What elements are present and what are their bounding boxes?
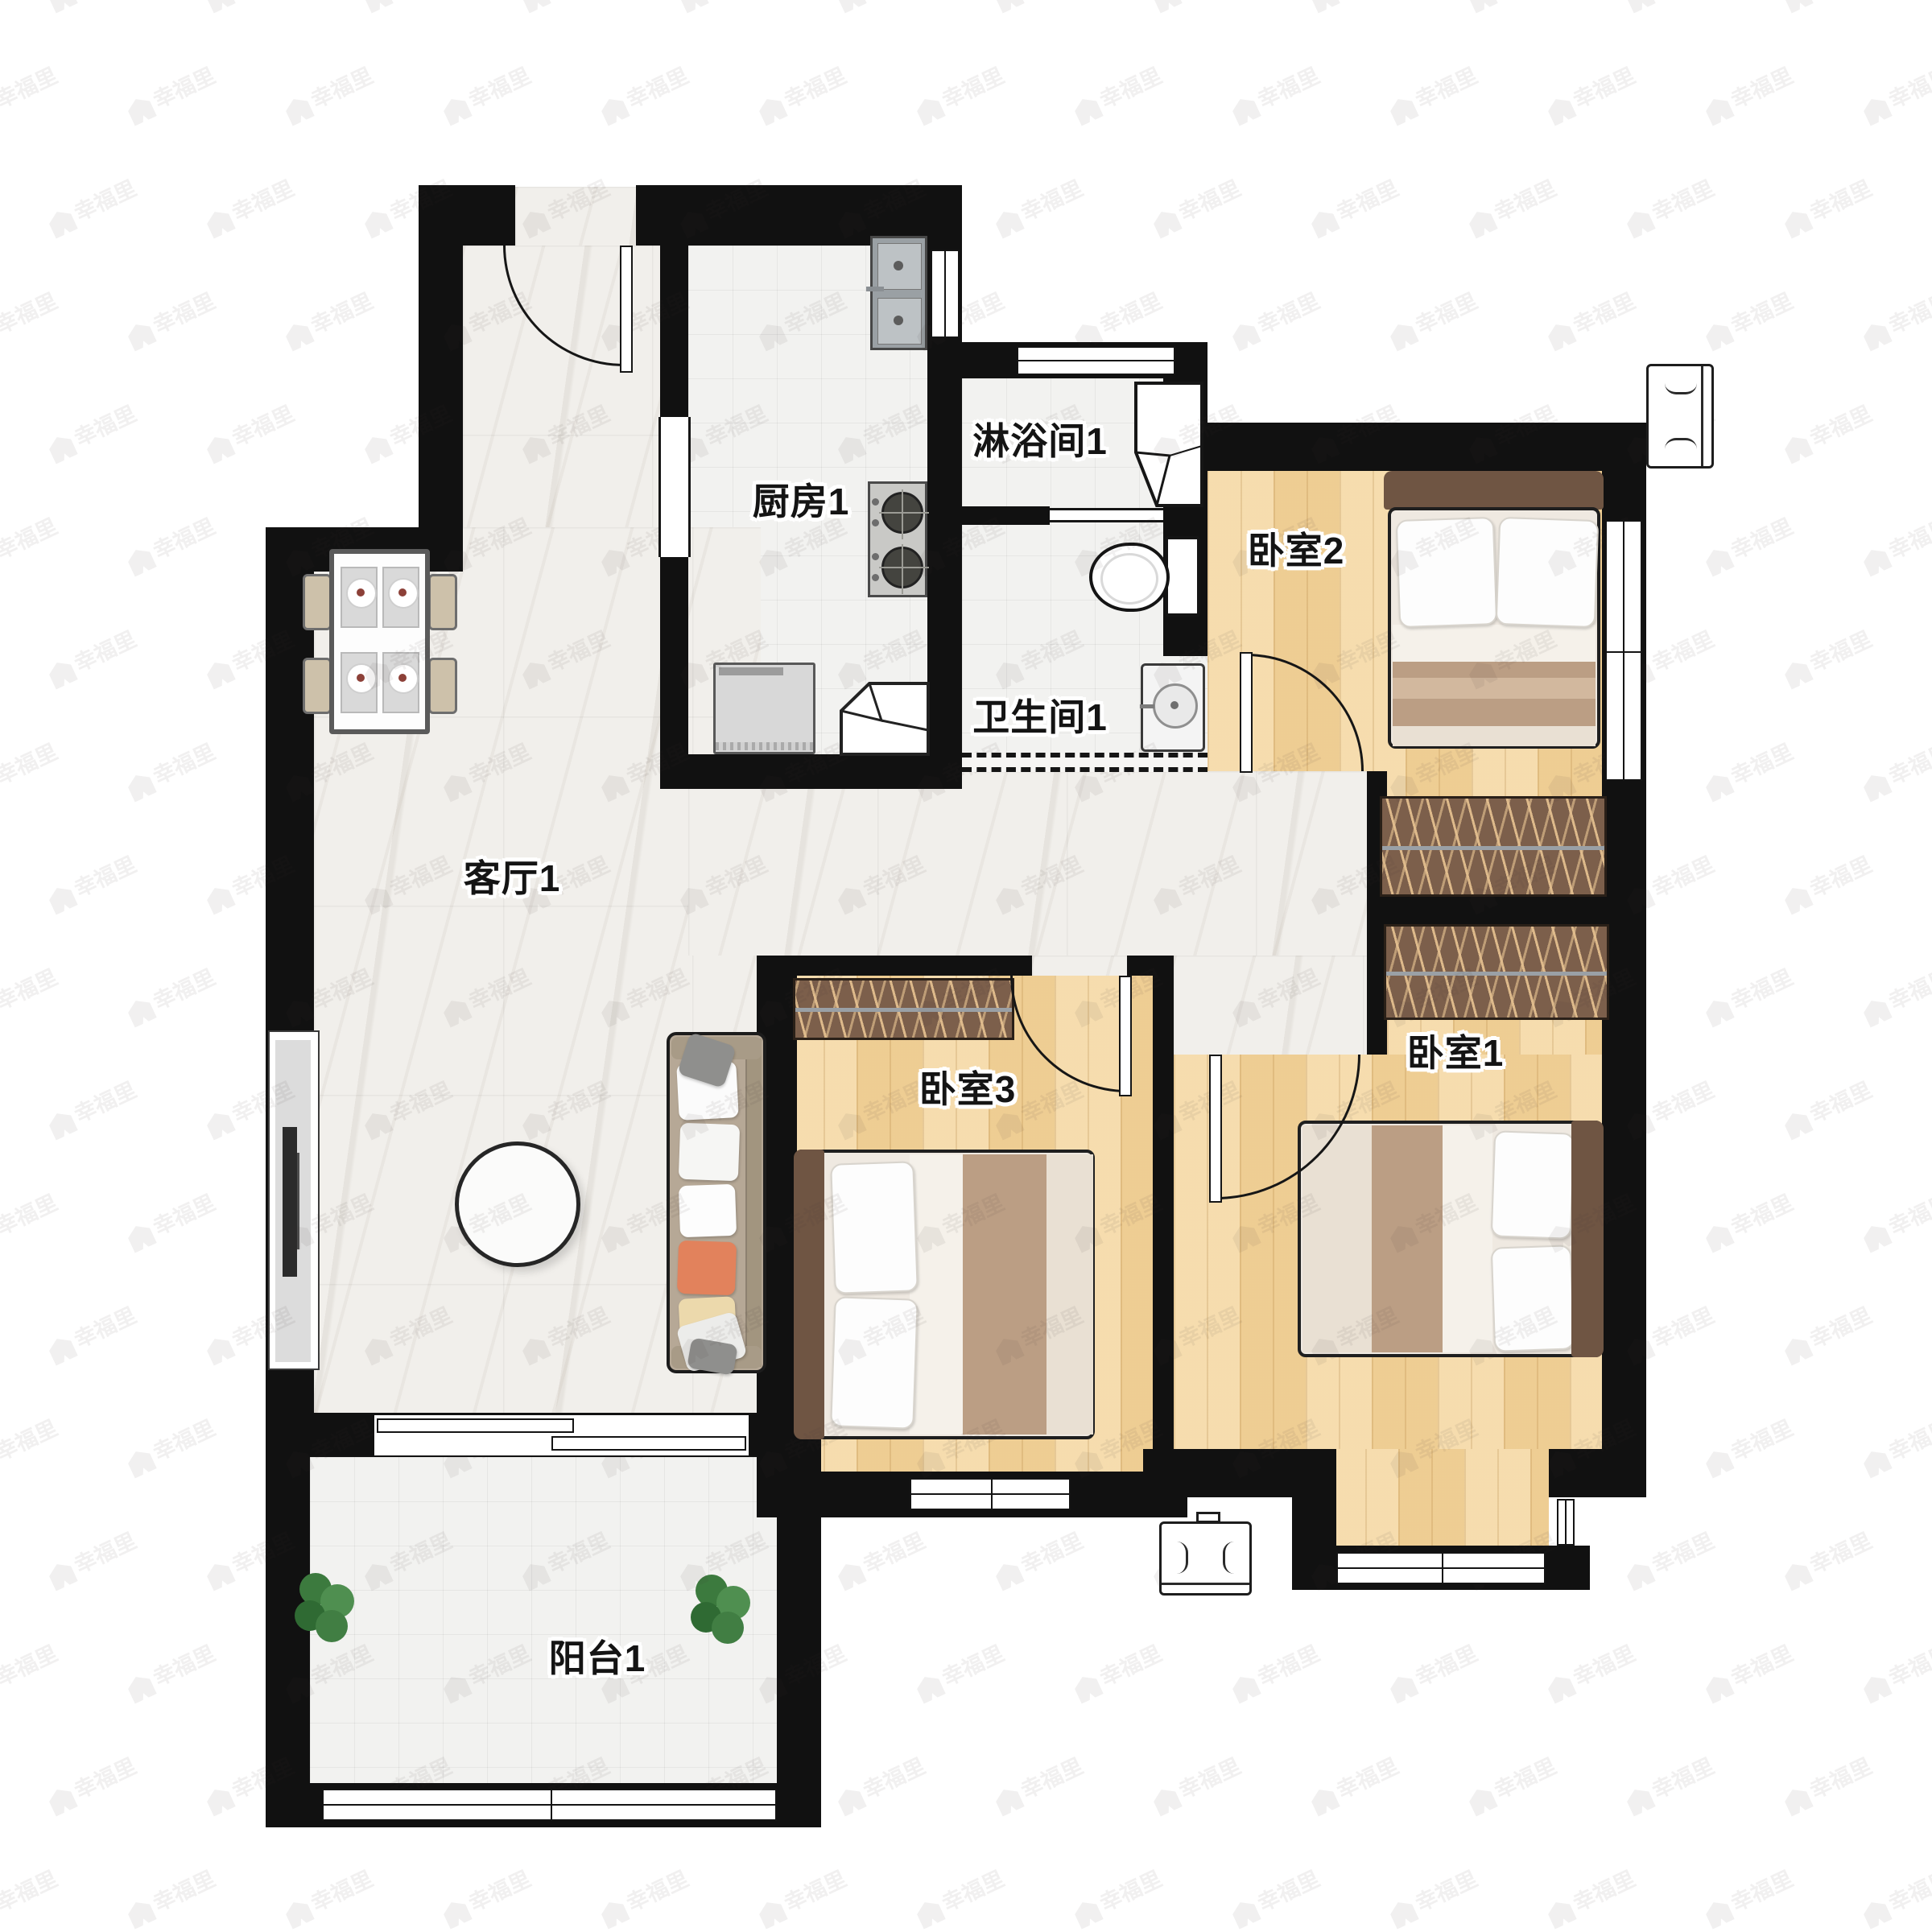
bedroom1-bed-headboard (1571, 1121, 1604, 1357)
brand-watermark: 幸福里 (753, 58, 851, 126)
house-icon (993, 207, 1025, 239)
brand-watermark: 幸福里 (200, 171, 299, 238)
house-icon (677, 0, 709, 14)
brand-watermark: 幸福里 (1699, 734, 1798, 802)
kitchen-opening (658, 417, 691, 557)
house-icon (1860, 320, 1893, 352)
brand-watermark: 幸福里 (43, 1748, 141, 1816)
room-label-bedroom2: 卧室2 (1248, 522, 1345, 575)
house-icon (1703, 545, 1735, 577)
brand-watermark: 幸福里 (1699, 509, 1798, 576)
brand-watermark: 幸福里 (0, 1410, 62, 1478)
brand-watermark: 幸福里 (1226, 283, 1324, 351)
brand-watermark: 幸福里 (674, 0, 772, 14)
brand-watermark: 幸福里 (279, 58, 378, 126)
wall-kitchen-bottom (660, 754, 962, 789)
house-icon (1860, 1672, 1893, 1704)
brand-watermark: 幸福里 (1384, 1636, 1482, 1703)
house-icon (46, 1559, 78, 1591)
hallway-spur-floor (1174, 956, 1367, 1055)
house-icon (1781, 1108, 1814, 1141)
entrance-threshold-floor (515, 187, 636, 246)
tv-icon (283, 1127, 297, 1277)
house-icon (46, 658, 78, 690)
kitchen-sink (870, 236, 927, 350)
wall-bottom-right-step (1549, 1449, 1646, 1497)
house-icon (204, 0, 236, 14)
room-label-living: 客厅1 (464, 849, 561, 902)
house-icon (1545, 320, 1577, 352)
wall-bedroom2-top (1207, 423, 1646, 471)
house-icon (835, 0, 867, 14)
house-icon (1229, 1672, 1261, 1704)
house-icon (204, 883, 236, 915)
dining-chair-top-right (428, 574, 457, 630)
dining-table (329, 549, 430, 734)
house-icon (1387, 1897, 1419, 1930)
room-label-bedroom1: 卧室1 (1407, 1024, 1505, 1077)
house-icon (283, 94, 315, 126)
brand-watermark: 幸福里 (910, 1636, 1009, 1703)
brand-watermark: 幸福里 (989, 1748, 1088, 1816)
bedroom3-door-leaf (1119, 976, 1132, 1096)
brand-watermark: 幸福里 (1778, 1523, 1876, 1591)
brand-watermark: 幸福里 (1068, 1861, 1166, 1929)
brand-watermark: 幸福里 (1384, 283, 1482, 351)
wall-left-upper (419, 185, 463, 527)
house-icon (598, 94, 630, 126)
house-icon (1860, 1221, 1893, 1253)
house-icon (1703, 1897, 1735, 1930)
house-icon (204, 207, 236, 239)
house-icon (125, 1897, 157, 1930)
brand-watermark: 幸福里 (122, 734, 220, 802)
bedroom1-floor-c (1332, 1449, 1549, 1554)
house-icon (1308, 0, 1340, 14)
house-icon (756, 1897, 788, 1930)
shower-tray (1134, 382, 1203, 507)
house-icon (598, 1897, 630, 1930)
brand-watermark: 幸福里 (1620, 0, 1719, 14)
room-label-balcony: 阳台1 (549, 1629, 646, 1682)
house-icon (361, 207, 394, 239)
brand-watermark: 幸福里 (43, 1298, 141, 1365)
brand-watermark: 幸福里 (1226, 58, 1324, 126)
house-icon (1703, 94, 1735, 126)
brand-watermark: 幸福里 (1620, 171, 1719, 238)
house-icon (1545, 1672, 1577, 1704)
brand-watermark: 幸福里 (989, 171, 1088, 238)
brand-watermark: 幸福里 (1226, 1861, 1324, 1929)
ac-unit-bedroom2 (1646, 364, 1714, 469)
house-icon (125, 320, 157, 352)
brand-watermark: 幸福里 (0, 58, 62, 126)
house-icon (1781, 0, 1814, 14)
house-icon (1624, 0, 1656, 14)
house-icon (361, 432, 394, 464)
brand-watermark: 幸福里 (43, 1523, 141, 1591)
brand-watermark: 幸福里 (358, 0, 456, 14)
house-icon (204, 658, 236, 690)
brand-watermark: 幸福里 (0, 1185, 62, 1253)
toilet-bowl (1089, 543, 1170, 612)
house-icon (283, 320, 315, 352)
house-icon (1703, 1672, 1735, 1704)
brand-watermark: 幸福里 (0, 1861, 62, 1929)
brand-watermark: 幸福里 (122, 1636, 220, 1703)
brand-watermark: 幸福里 (1463, 1748, 1561, 1816)
house-icon (1545, 1897, 1577, 1930)
brand-watermark: 幸福里 (437, 1861, 535, 1929)
house-icon (1703, 1221, 1735, 1253)
house-icon (1860, 1447, 1893, 1479)
brand-watermark: 幸福里 (1542, 283, 1640, 351)
house-icon (46, 1108, 78, 1141)
bedroom3-wardrobe (793, 978, 1014, 1040)
house-icon (1387, 94, 1419, 126)
brand-watermark: 幸福里 (1699, 1410, 1798, 1478)
brand-watermark: 幸福里 (43, 0, 141, 14)
balcony-sliding-door (374, 1415, 749, 1455)
brand-watermark: 幸福里 (1857, 58, 1932, 126)
brand-watermark: 幸福里 (122, 509, 220, 576)
house-icon (125, 996, 157, 1028)
house-icon (204, 1785, 236, 1817)
brand-watermark: 幸福里 (1699, 1185, 1798, 1253)
brand-watermark: 幸福里 (1542, 58, 1640, 126)
house-icon (204, 1559, 236, 1591)
brand-watermark: 幸福里 (122, 283, 220, 351)
bedroom3-bed-headboard (794, 1150, 824, 1439)
brand-watermark: 幸福里 (43, 396, 141, 464)
house-icon (1229, 320, 1261, 352)
house-icon (125, 94, 157, 126)
brand-watermark: 幸福里 (1699, 960, 1798, 1027)
bedroom3-window (910, 1478, 1071, 1510)
corner-window-stub (1557, 1499, 1575, 1546)
balcony-window (322, 1789, 777, 1821)
brand-watermark: 幸福里 (595, 58, 693, 126)
brand-watermark: 幸福里 (989, 1523, 1088, 1591)
brand-watermark: 幸福里 (1305, 1748, 1403, 1816)
house-icon (1150, 207, 1183, 239)
house-icon (993, 1559, 1025, 1591)
brand-watermark: 幸福里 (1778, 0, 1876, 14)
house-icon (1860, 545, 1893, 577)
brand-watermark: 幸福里 (1778, 171, 1876, 238)
brand-watermark: 幸福里 (1384, 58, 1482, 126)
bedroom2-door-leaf (1240, 652, 1253, 773)
house-icon (914, 1897, 946, 1930)
brand-watermark: 幸福里 (1068, 58, 1166, 126)
floor-plan-canvas: 幸福里幸福里幸福里幸福里幸福里幸福里幸福里幸福里幸福里幸福里幸福里幸福里幸福里幸… (0, 0, 1932, 1932)
house-icon (46, 0, 78, 14)
brand-watermark: 幸福里 (1305, 0, 1403, 14)
ac-unit-bedroom3 (1159, 1521, 1252, 1596)
coffee-table (455, 1141, 580, 1267)
wall-bedroom1-2-divider (1367, 897, 1646, 924)
house-icon (993, 1785, 1025, 1817)
brand-watermark: 幸福里 (43, 621, 141, 689)
house-icon (46, 1785, 78, 1817)
corridor-floor (688, 771, 1367, 956)
brand-watermark: 幸福里 (1699, 1861, 1798, 1929)
dining-chair-bottom-left (303, 658, 332, 714)
room-label-bathroom: 卫生间1 (972, 688, 1108, 741)
brand-watermark: 幸福里 (1620, 1523, 1719, 1591)
brand-watermark: 幸福里 (43, 171, 141, 238)
brand-watermark: 幸福里 (279, 283, 378, 351)
brand-watermark: 幸福里 (1857, 283, 1932, 351)
house-icon (1466, 0, 1498, 14)
brand-watermark: 幸福里 (1699, 58, 1798, 126)
bedroom2-bed (1388, 507, 1600, 749)
house-icon (835, 1785, 867, 1817)
house-icon (1781, 658, 1814, 690)
room-label-shower: 淋浴间1 (972, 412, 1108, 465)
house-icon (440, 1897, 473, 1930)
bedroom1-bed (1298, 1121, 1604, 1357)
house-icon (1150, 1785, 1183, 1817)
brand-watermark: 幸福里 (1778, 1072, 1876, 1140)
house-icon (835, 1559, 867, 1591)
house-icon (914, 94, 946, 126)
house-icon (1071, 1672, 1104, 1704)
refrigerator (713, 663, 815, 754)
brand-watermark: 幸福里 (989, 0, 1088, 14)
bedroom2-wardrobe (1380, 796, 1607, 897)
bedroom3-door-gap (1032, 956, 1127, 976)
bathroom-threshold-dashed (962, 753, 1207, 772)
house-icon (756, 94, 788, 126)
house-icon (125, 1672, 157, 1704)
house-icon (914, 1672, 946, 1704)
house-icon (1703, 1447, 1735, 1479)
brand-watermark: 幸福里 (0, 283, 62, 351)
brand-watermark: 幸福里 (1857, 1410, 1932, 1478)
brand-watermark: 幸福里 (910, 58, 1009, 126)
bedroom1-window (1336, 1552, 1546, 1584)
house-icon (1781, 1334, 1814, 1366)
house-icon (1466, 1785, 1498, 1817)
brand-watermark: 幸福里 (753, 1861, 851, 1929)
house-icon (204, 1108, 236, 1141)
faucet-icon (1140, 704, 1154, 708)
brand-watermark: 幸福里 (1857, 734, 1932, 802)
house-icon (46, 1334, 78, 1366)
brand-watermark: 幸福里 (1147, 0, 1245, 14)
house-icon (1466, 207, 1498, 239)
brand-watermark: 幸福里 (832, 1748, 930, 1816)
house-icon (1624, 1785, 1656, 1817)
brand-watermark: 幸福里 (516, 0, 614, 14)
brand-watermark: 幸福里 (43, 1072, 141, 1140)
house-icon (1703, 770, 1735, 803)
house-icon (1781, 1785, 1814, 1817)
brand-watermark: 幸福里 (1778, 847, 1876, 914)
room-label-kitchen: 厨房1 (753, 473, 850, 526)
brand-watermark: 幸福里 (832, 1523, 930, 1591)
bedroom1-door-leaf (1209, 1055, 1222, 1203)
brand-watermark: 幸福里 (122, 1861, 220, 1929)
brand-watermark: 幸福里 (595, 1861, 693, 1929)
house-icon (204, 432, 236, 464)
brand-watermark: 幸福里 (1857, 1636, 1932, 1703)
brand-watermark: 幸福里 (1857, 509, 1932, 576)
house-icon (1781, 883, 1814, 915)
brand-watermark: 幸福里 (1857, 960, 1932, 1027)
house-icon (204, 1334, 236, 1366)
brand-watermark: 幸福里 (43, 847, 141, 914)
brand-watermark: 幸福里 (1857, 1185, 1932, 1253)
bedroom2-bed-headboard (1384, 471, 1604, 510)
brand-watermark: 幸福里 (122, 1410, 220, 1478)
house-icon (1781, 1559, 1814, 1591)
brand-watermark: 幸福里 (1147, 171, 1245, 238)
bedroom3-bed (794, 1150, 1095, 1439)
house-icon (1071, 94, 1104, 126)
brand-watermark: 幸福里 (122, 1185, 220, 1253)
brand-watermark: 幸福里 (200, 0, 299, 14)
brand-watermark: 幸福里 (0, 509, 62, 576)
brand-watermark: 幸福里 (832, 0, 930, 14)
bathroom-sink (1141, 663, 1205, 752)
brand-watermark: 幸福里 (1542, 1636, 1640, 1703)
house-icon (361, 0, 394, 14)
brand-watermark: 幸福里 (1542, 1861, 1640, 1929)
house-icon (1860, 1897, 1893, 1930)
brand-watermark: 幸福里 (1384, 1861, 1482, 1929)
house-icon (1624, 207, 1656, 239)
shower-window (1017, 346, 1175, 375)
brand-watermark: 幸福里 (1778, 621, 1876, 689)
brand-watermark: 幸福里 (437, 58, 535, 126)
house-icon (993, 0, 1025, 14)
brand-watermark: 幸福里 (279, 1861, 378, 1929)
house-icon (1703, 996, 1735, 1028)
sofa (667, 1032, 766, 1373)
brand-watermark: 幸福里 (200, 396, 299, 464)
house-icon (46, 207, 78, 239)
house-icon (1071, 1897, 1104, 1930)
brand-watermark: 幸福里 (122, 58, 220, 126)
house-icon (1229, 1897, 1261, 1930)
house-icon (46, 883, 78, 915)
brand-watermark: 幸福里 (1857, 1861, 1932, 1929)
brand-watermark: 幸福里 (1147, 1748, 1245, 1816)
house-icon (46, 432, 78, 464)
house-icon (440, 94, 473, 126)
dining-chair-bottom-right (428, 658, 457, 714)
brand-watermark: 幸福里 (1778, 396, 1876, 464)
brand-watermark: 幸福里 (1778, 1748, 1876, 1816)
brand-watermark: 幸福里 (1463, 171, 1561, 238)
wall-shower-bath-divider (962, 506, 1050, 525)
house-icon (125, 770, 157, 803)
brand-watermark: 幸福里 (1226, 1636, 1324, 1703)
entrance-door-leaf (620, 246, 633, 373)
kitchen-window (931, 250, 960, 338)
shower-glass-door (1050, 508, 1163, 522)
house-icon (1387, 1672, 1419, 1704)
house-icon (1308, 1785, 1340, 1817)
house-icon (125, 545, 157, 577)
house-icon (1624, 1559, 1656, 1591)
house-icon (1308, 207, 1340, 239)
house-icon (1860, 996, 1893, 1028)
brand-watermark: 幸福里 (1778, 1298, 1876, 1365)
brand-watermark: 幸福里 (0, 960, 62, 1027)
ac-bracket (1196, 1512, 1220, 1523)
brand-watermark: 幸福里 (0, 734, 62, 802)
brand-watermark: 幸福里 (1463, 0, 1561, 14)
brand-watermark: 幸福里 (910, 1861, 1009, 1929)
house-icon (1229, 94, 1261, 126)
brand-watermark: 幸福里 (0, 1636, 62, 1703)
house-icon (1150, 0, 1183, 14)
brand-watermark: 幸福里 (1068, 1636, 1166, 1703)
bedroom1-wardrobe (1384, 924, 1609, 1020)
brand-watermark: 幸福里 (1620, 1748, 1719, 1816)
plant-left (293, 1568, 357, 1645)
house-icon (125, 1221, 157, 1253)
tv-console (268, 1030, 320, 1370)
kitchen-corner-cabinet (840, 682, 930, 756)
bedroom2-window (1605, 520, 1642, 781)
house-icon (1781, 207, 1814, 239)
house-icon (1703, 320, 1735, 352)
brand-watermark: 幸福里 (1699, 283, 1798, 351)
wall-bedroom3-right (1153, 956, 1174, 1472)
brand-watermark: 幸福里 (1699, 1636, 1798, 1703)
toilet-tank (1165, 536, 1200, 617)
brand-watermark: 幸福里 (122, 960, 220, 1027)
house-icon (1860, 94, 1893, 126)
house-icon (283, 1897, 315, 1930)
house-icon (1860, 770, 1893, 803)
kitchen-stove (868, 481, 927, 597)
brand-watermark: 幸福里 (1305, 171, 1403, 238)
house-icon (125, 1447, 157, 1479)
house-icon (1781, 432, 1814, 464)
house-icon (1387, 320, 1419, 352)
faucet-icon (866, 287, 884, 291)
room-label-bedroom3: 卧室3 (919, 1060, 1017, 1113)
dining-chair-top-left (303, 574, 332, 630)
house-icon (519, 0, 551, 14)
plant-right (689, 1570, 753, 1646)
house-icon (1545, 94, 1577, 126)
